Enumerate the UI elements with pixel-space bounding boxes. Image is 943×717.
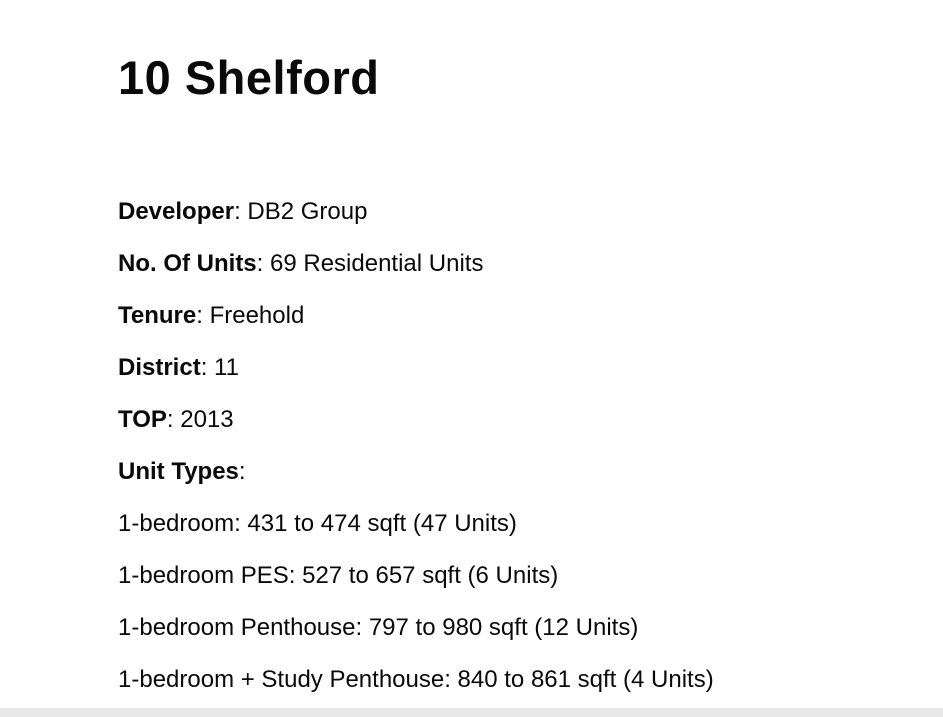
separator: : <box>196 302 209 329</box>
unit-type-line: 1-bedroom PES: 527 to 657 sqft (6 Units) <box>118 550 903 602</box>
detail-value: DB2 Group <box>247 198 367 225</box>
detail-value: 69 Residential Units <box>270 250 483 277</box>
detail-row-district: District: 11 <box>118 342 903 394</box>
bottom-edge-strip <box>0 708 943 717</box>
detail-row-unit-types-heading: Unit Types: <box>118 446 903 498</box>
detail-row-units: No. Of Units: 69 Residential Units <box>118 238 903 290</box>
detail-label: Tenure <box>118 302 196 329</box>
unit-type-line: 1-bedroom + Study Penthouse: 840 to 861 … <box>118 654 903 706</box>
property-sheet: 10 Shelford Developer: DB2 Group No. Of … <box>0 0 943 706</box>
detail-label: No. Of Units <box>118 250 257 277</box>
detail-value: 11 <box>214 354 239 381</box>
unit-type-line: 1-bedroom: 431 to 474 sqft (47 Units) <box>118 498 903 550</box>
detail-row-developer: Developer: DB2 Group <box>118 186 903 238</box>
separator: : <box>239 458 246 485</box>
unit-type-line: 1-bedroom Penthouse: 797 to 980 sqft (12… <box>118 602 903 654</box>
detail-row-top: TOP: 2013 <box>118 394 903 446</box>
detail-row-tenure: Tenure: Freehold <box>118 290 903 342</box>
detail-label: TOP <box>118 406 167 433</box>
property-details: Developer: DB2 Group No. Of Units: 69 Re… <box>118 186 903 706</box>
detail-label: District <box>118 354 201 381</box>
detail-label: Unit Types <box>118 458 239 485</box>
separator: : <box>234 198 247 225</box>
separator: : <box>201 354 214 381</box>
detail-value: 2013 <box>180 406 233 433</box>
page-title: 10 Shelford <box>118 50 903 106</box>
detail-label: Developer <box>118 198 234 225</box>
separator: : <box>257 250 270 277</box>
separator: : <box>167 406 180 433</box>
detail-value: Freehold <box>210 302 305 329</box>
